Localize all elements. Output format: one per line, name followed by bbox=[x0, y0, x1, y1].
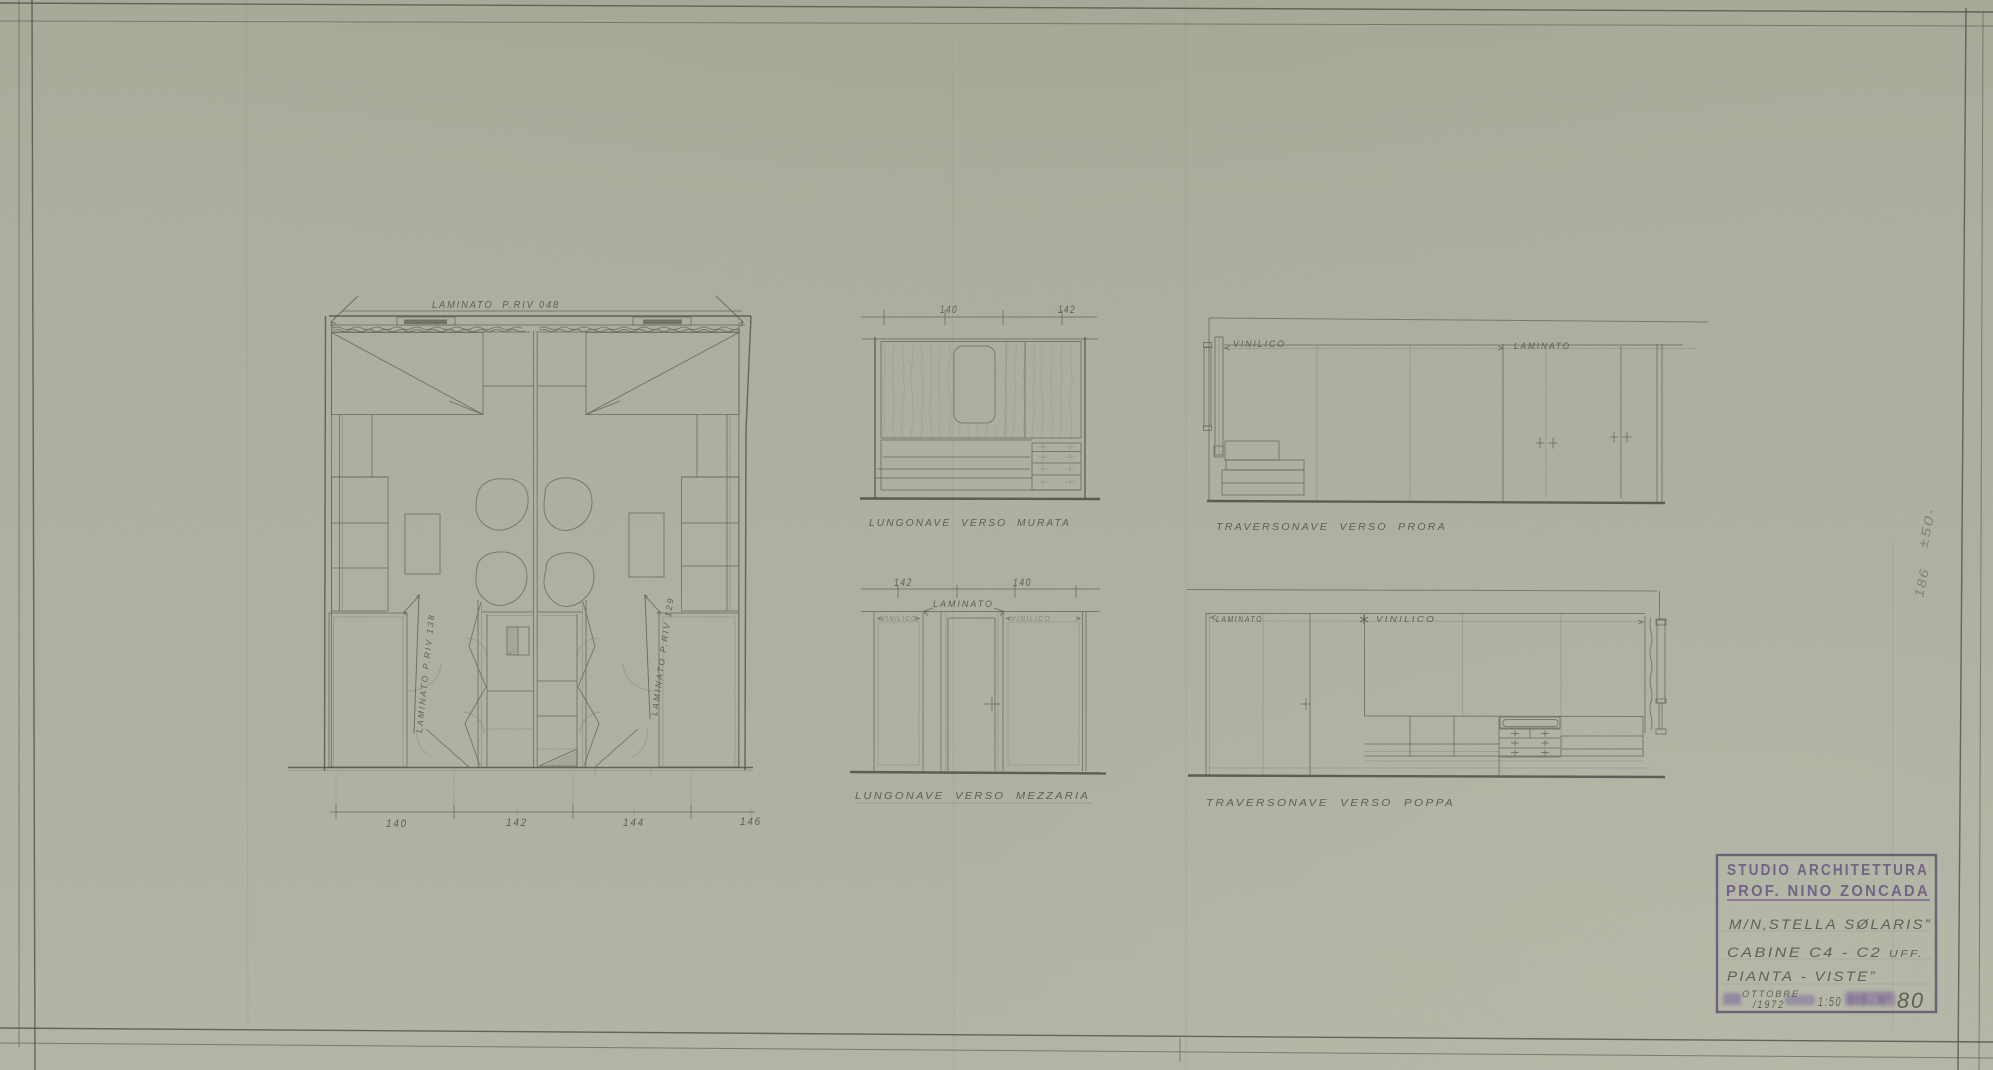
svg-text:LAMINATO: LAMINATO bbox=[1514, 341, 1571, 351]
svg-text:144: 144 bbox=[623, 817, 645, 829]
svg-text:LUNGONAVE VERSO MEZZARIA: LUNGONAVE VERSO MEZZARIA bbox=[855, 791, 1090, 802]
svg-text:TRAVERSONAVE VERSO PRORA: TRAVERSONAVE VERSO PRORA bbox=[1216, 522, 1447, 533]
svg-text:VINILICO: VINILICO bbox=[1011, 614, 1051, 623]
svg-text:140: 140 bbox=[940, 304, 958, 316]
svg-text:80: 80 bbox=[1897, 988, 1925, 1013]
svg-text:142: 142 bbox=[506, 817, 528, 829]
svg-text:1:50: 1:50 bbox=[1818, 995, 1842, 1009]
svg-text:LAMINATO P.RIV 048: LAMINATO P.RIV 048 bbox=[432, 299, 560, 311]
svg-text:PIANTA - VISTE”: PIANTA - VISTE” bbox=[1727, 969, 1877, 984]
svg-text:LUNGONAVE VERSO MURATA: LUNGONAVE VERSO MURATA bbox=[869, 518, 1071, 529]
svg-text:TRAVERSONAVE VERSO POPPA: TRAVERSONAVE VERSO POPPA bbox=[1206, 798, 1455, 809]
svg-text:VINILICO: VINILICO bbox=[1376, 614, 1436, 624]
svg-text:LAMINATO: LAMINATO bbox=[1216, 614, 1263, 624]
svg-text:140: 140 bbox=[1013, 577, 1032, 589]
svg-text:146: 146 bbox=[740, 816, 762, 828]
svg-text:140: 140 bbox=[386, 818, 408, 830]
svg-text:/1972: /1972 bbox=[1752, 999, 1785, 1011]
svg-text:M/N‚STELLA SØLARIS”: M/N‚STELLA SØLARIS” bbox=[1729, 917, 1932, 932]
svg-text:142: 142 bbox=[1058, 304, 1076, 316]
svg-text:PROF. NINO ZONCADA: PROF. NINO ZONCADA bbox=[1726, 883, 1930, 900]
svg-text:STUDIO ARCHITETTURA: STUDIO ARCHITETTURA bbox=[1727, 862, 1929, 879]
svg-text:DIS. Nº: DIS. Nº bbox=[1848, 994, 1892, 1006]
svg-text:VINILICO: VINILICO bbox=[881, 614, 917, 623]
svg-text:VINILICO: VINILICO bbox=[1233, 339, 1286, 349]
svg-text:LAMINATO: LAMINATO bbox=[933, 599, 994, 609]
svg-text:142: 142 bbox=[894, 577, 913, 589]
